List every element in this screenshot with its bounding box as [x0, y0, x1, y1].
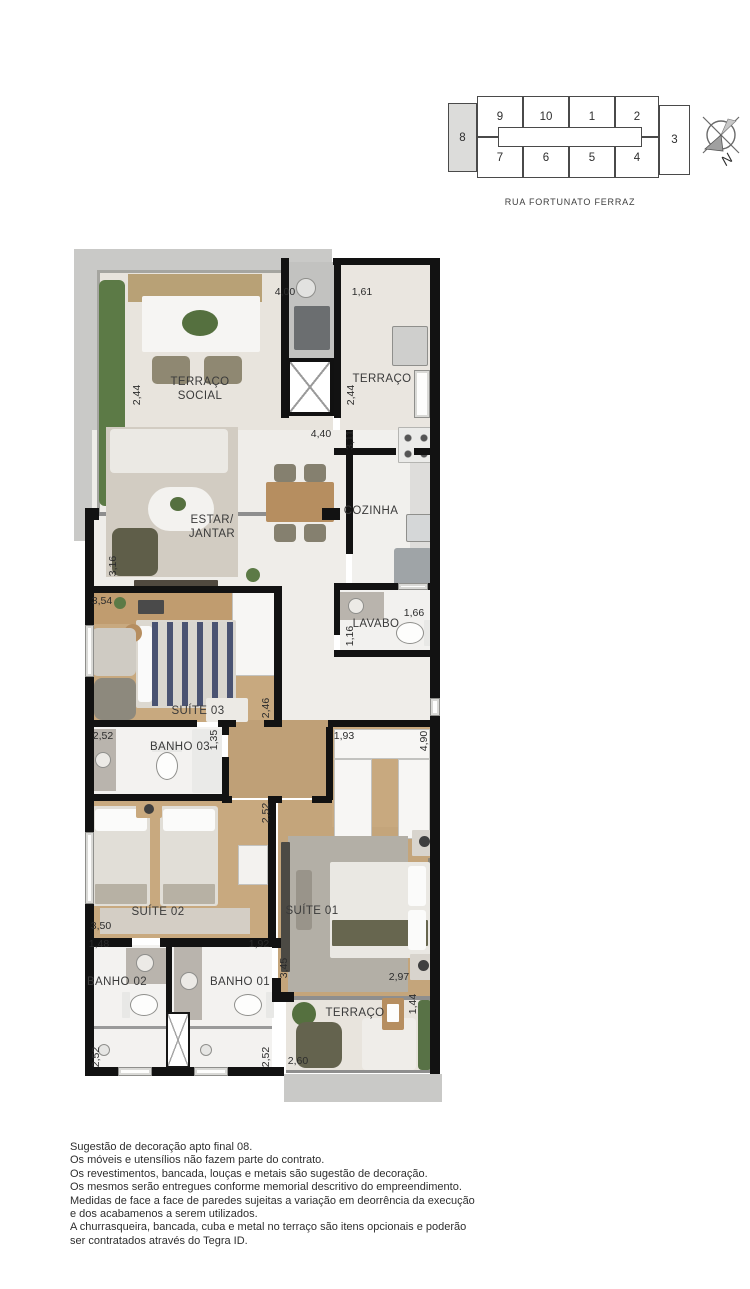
chair	[274, 524, 296, 542]
wall	[326, 727, 333, 800]
railing	[97, 270, 282, 273]
closet-shelf	[398, 759, 430, 839]
window	[414, 370, 430, 418]
wall	[85, 586, 282, 593]
room-label-su-te-02: SUÍTE 02	[131, 906, 184, 920]
dimension-label: 3,45	[278, 958, 290, 978]
room-label-banho-01: BANHO 01	[210, 976, 270, 990]
sink	[180, 972, 198, 990]
wall	[328, 720, 437, 727]
wall	[85, 794, 229, 801]
dimension-label: 1,92	[249, 938, 269, 950]
room-label-estar-jantar: ESTAR/JANTAR	[189, 514, 235, 542]
room-label-banho-02: BANHO 02	[87, 976, 147, 990]
sink	[296, 278, 316, 298]
sink	[348, 598, 364, 614]
floorplan-page: { "key_plan": { "street": "RUA FORTUNATO…	[0, 0, 750, 1289]
wall	[414, 448, 437, 455]
disclaimer-line: Medidas de face a face de paredes sujeit…	[70, 1195, 475, 1208]
dimension-label: 4,90	[418, 731, 430, 751]
wall	[334, 583, 398, 590]
railing	[286, 1070, 434, 1073]
lamp	[419, 836, 430, 847]
dimension-label: 2,46	[260, 698, 272, 718]
window	[118, 1067, 152, 1076]
disclaimer-line: Os móveis e utensílios não fazem parte d…	[70, 1154, 475, 1167]
lamp	[418, 960, 429, 971]
floor-hall-intimo	[228, 720, 332, 798]
wall	[322, 508, 340, 520]
shower-glass	[92, 1026, 166, 1029]
dimension-label: 2,52	[260, 1047, 272, 1067]
dimension-label: 4,00	[275, 286, 295, 298]
room-label-cozinha: COZINHA	[344, 505, 399, 519]
disclaimer-line: Os revestimentos, bancada, louças e meta…	[70, 1168, 475, 1181]
dimension-label: 1,35	[208, 730, 220, 750]
kitchen-sink	[406, 514, 432, 542]
sink	[95, 752, 111, 768]
wall	[85, 508, 99, 520]
window	[398, 583, 428, 590]
dimension-label: 3,16	[107, 556, 119, 576]
dimension-label: 2,52	[260, 803, 272, 823]
toilet	[234, 994, 262, 1016]
lamp	[144, 804, 154, 814]
wardrobe	[238, 845, 268, 885]
bed-throw	[95, 884, 147, 904]
room-label-banho-03: BANHO 03	[150, 741, 210, 755]
room-label-su-te-03: SUÍTE 03	[171, 705, 224, 719]
grill	[294, 306, 330, 350]
room-label-terra-o: TERRAÇO	[325, 1007, 384, 1021]
wall	[334, 258, 341, 418]
dimension-label: 2,97	[389, 971, 409, 983]
dimension-label: 3,11	[344, 430, 356, 450]
dimension-label: 1,61	[352, 286, 372, 298]
laptop	[138, 600, 164, 614]
wall	[428, 583, 437, 590]
armchair	[94, 678, 136, 720]
floor-hall	[280, 588, 334, 720]
dimension-label: 3,54	[92, 595, 112, 607]
dimension-label: 1,66	[404, 607, 424, 619]
room-label-su-te-01: SUÍTE 01	[285, 905, 338, 919]
dimension-label: 1,44	[407, 994, 419, 1014]
wall	[312, 796, 332, 803]
wall	[333, 258, 437, 265]
dimension-label: 1,16	[344, 626, 356, 646]
floor-hall	[330, 657, 430, 720]
slab	[284, 1074, 442, 1102]
dimension-label: 3,50	[91, 920, 111, 932]
tray	[387, 1004, 399, 1022]
sofa	[110, 429, 228, 473]
dimension-label: 1,48	[89, 938, 109, 950]
dimension-label: 2,44	[345, 385, 357, 405]
stove	[398, 427, 432, 463]
wall	[222, 727, 229, 735]
dimension-label: 1,93	[334, 730, 354, 742]
wall	[430, 258, 440, 1074]
room-label-terra-o-social: TERRAÇOSOCIAL	[170, 376, 229, 404]
toilet	[396, 622, 424, 644]
disclaimer-line: A churrasqueira, bancada, cuba e metal n…	[70, 1221, 475, 1234]
wall	[228, 720, 236, 727]
plant	[182, 310, 218, 336]
dimension-label: 4,40	[311, 428, 331, 440]
dimension-label: 2,60	[288, 1055, 308, 1067]
wall	[222, 796, 232, 803]
pillow	[408, 866, 426, 906]
pillow	[408, 910, 426, 950]
disclaimer-line: Os mesmos serão entregues conforme memor…	[70, 1181, 475, 1194]
toilet	[130, 994, 158, 1016]
wall	[334, 650, 437, 657]
duct-shaft	[166, 1012, 190, 1068]
chair	[274, 464, 296, 482]
wall	[85, 1067, 284, 1076]
chair	[304, 464, 326, 482]
window	[85, 832, 94, 904]
toilet	[156, 752, 178, 780]
dimension-label: 2,44	[131, 385, 143, 405]
chair	[304, 524, 326, 542]
chaise	[92, 628, 136, 676]
plant	[114, 597, 126, 609]
wall	[222, 757, 229, 797]
plant	[246, 568, 260, 582]
window	[85, 625, 94, 677]
wall	[264, 720, 282, 727]
toilet-tank	[122, 992, 130, 1018]
pillow	[163, 809, 215, 831]
apartment-floor-plan: TERRAÇOSOCIALTERRAÇOESTAR/JANTARCOZINHAL…	[0, 0, 750, 1289]
dimension-label: 2,52	[90, 1047, 102, 1067]
window	[194, 1067, 228, 1076]
room-label-terra-o: TERRAÇO	[352, 373, 411, 387]
disclaimer-line: ser contratados através do Tegra ID.	[70, 1235, 475, 1248]
disclaimer-line: Sugestão de decoração apto final 08.	[70, 1141, 475, 1154]
elevator-shaft	[286, 358, 334, 416]
plant	[170, 497, 186, 511]
disclaimer-notes: Sugestão de decoração apto final 08.Os m…	[70, 1141, 475, 1248]
shower-drain	[200, 1044, 212, 1056]
wall	[85, 720, 197, 727]
disclaimer-line: e dos acabamenos a serem utilizados.	[70, 1208, 475, 1221]
wall	[274, 586, 282, 722]
sink	[136, 954, 154, 972]
bed-throw	[163, 884, 215, 904]
wall	[272, 992, 294, 1002]
washing-machine	[392, 326, 428, 366]
window	[430, 698, 440, 716]
wall	[334, 583, 340, 635]
dimension-label: 2,52	[93, 730, 113, 742]
fridge	[394, 548, 432, 586]
wall	[272, 938, 281, 948]
room-label-lavabo: LAVABO	[353, 618, 400, 632]
bench	[296, 870, 312, 930]
bed-striped-duvet	[152, 622, 234, 706]
wardrobe	[232, 592, 276, 676]
